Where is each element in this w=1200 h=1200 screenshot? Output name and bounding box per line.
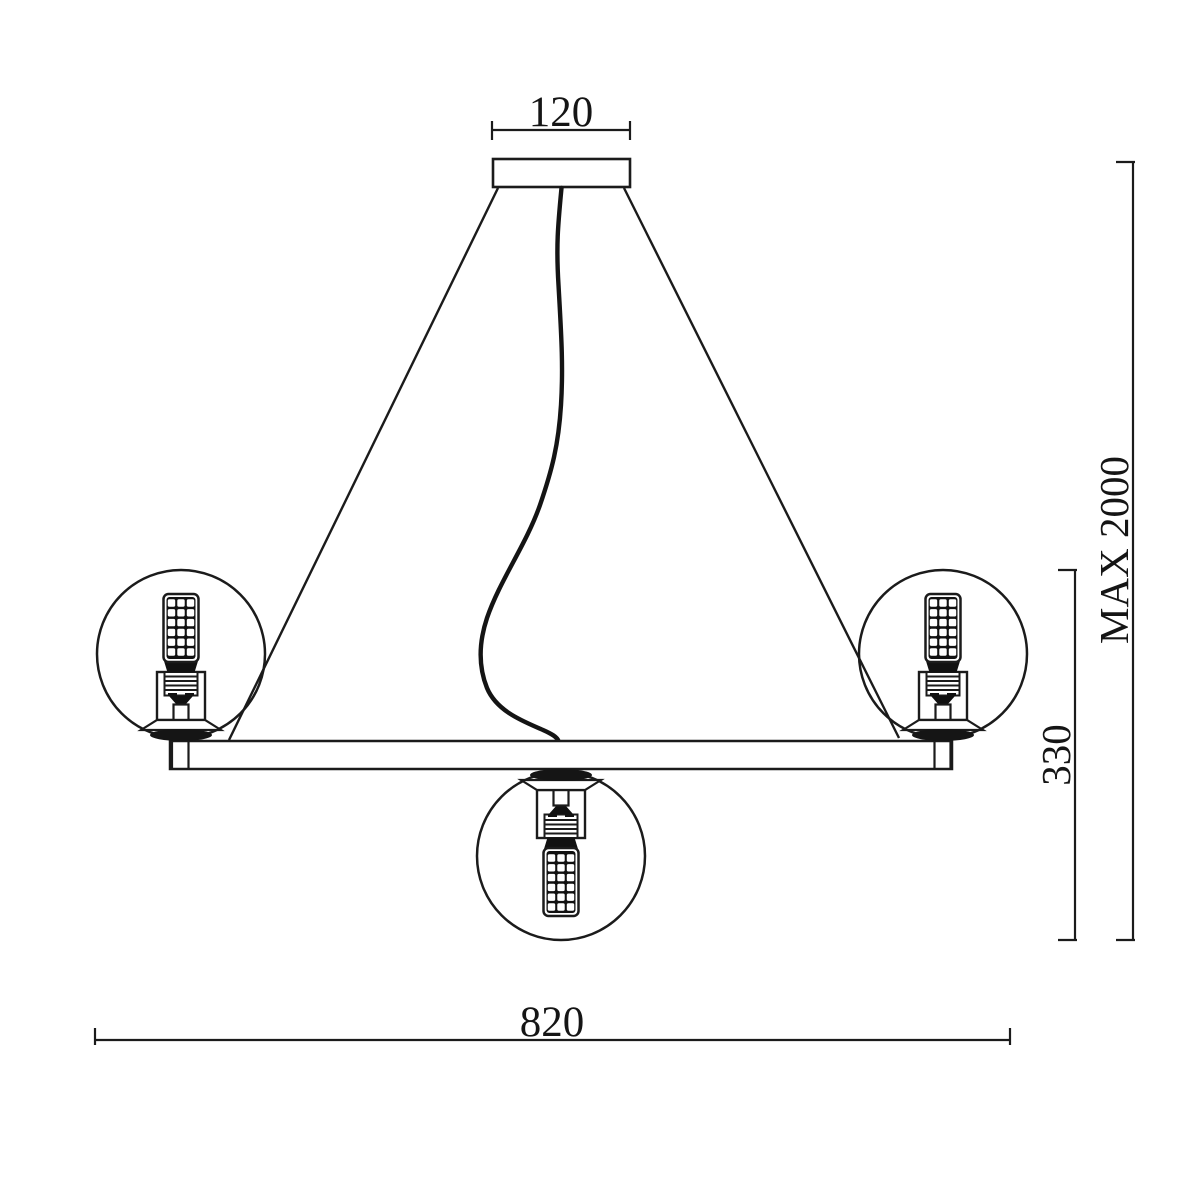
ceiling-canopy (493, 159, 630, 187)
dimension-label-max-drop: MAX 2000 (1091, 456, 1137, 644)
chandelier-dimension-drawing: 120 MAX 2000 330 (0, 0, 1200, 1200)
lamp-unit-left (97, 570, 265, 741)
suspension-wire-right (624, 188, 899, 738)
ring-frame (170, 741, 952, 769)
technical-drawing-canvas: 120 MAX 2000 330 (0, 0, 1200, 1200)
power-cord (481, 188, 562, 741)
dimension-label-canopy-width: 120 (529, 89, 594, 136)
lamp-unit-bottom (477, 769, 645, 940)
suspension-wire-left (229, 188, 498, 740)
dimension-label-body-height: 330 (1033, 724, 1079, 786)
lamp-unit-right (859, 570, 1027, 741)
dimension-label-overall-width: 820 (520, 999, 585, 1046)
